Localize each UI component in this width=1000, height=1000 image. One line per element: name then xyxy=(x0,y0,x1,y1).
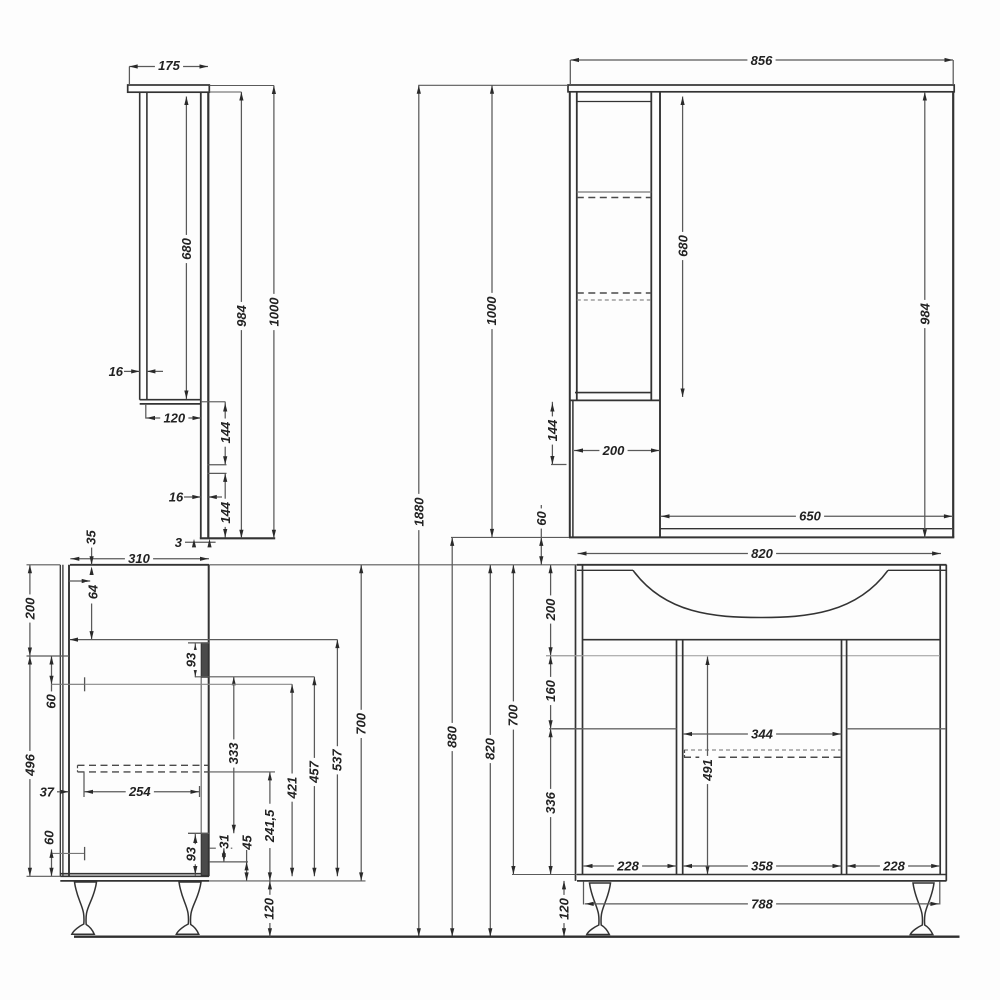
svg-text:241,5: 241,5 xyxy=(262,809,277,843)
svg-text:496: 496 xyxy=(22,753,37,776)
svg-text:820: 820 xyxy=(483,737,498,759)
svg-text:16: 16 xyxy=(109,364,124,379)
svg-text:37: 37 xyxy=(40,784,55,799)
svg-text:228: 228 xyxy=(616,859,639,874)
svg-text:3: 3 xyxy=(175,535,183,550)
svg-text:31: 31 xyxy=(217,834,232,848)
svg-text:650: 650 xyxy=(799,509,821,524)
svg-text:200: 200 xyxy=(543,598,558,621)
svg-text:336: 336 xyxy=(543,791,558,813)
svg-text:60: 60 xyxy=(534,511,549,526)
svg-text:358: 358 xyxy=(751,859,773,874)
svg-text:93: 93 xyxy=(183,652,198,667)
svg-text:175: 175 xyxy=(158,58,180,73)
svg-text:788: 788 xyxy=(751,896,773,911)
svg-text:64: 64 xyxy=(85,584,100,599)
svg-text:680: 680 xyxy=(179,237,194,259)
svg-text:457: 457 xyxy=(307,760,322,783)
svg-text:1000: 1000 xyxy=(267,297,282,327)
svg-text:700: 700 xyxy=(353,712,368,734)
svg-text:60: 60 xyxy=(42,830,57,845)
svg-text:144: 144 xyxy=(218,501,233,523)
svg-text:120: 120 xyxy=(163,410,185,425)
svg-text:344: 344 xyxy=(751,726,773,741)
svg-text:144: 144 xyxy=(545,419,560,441)
svg-text:200: 200 xyxy=(602,443,625,458)
svg-text:700: 700 xyxy=(506,704,521,726)
svg-text:120: 120 xyxy=(557,897,572,919)
svg-text:144: 144 xyxy=(218,421,233,443)
svg-text:35: 35 xyxy=(84,530,99,545)
svg-text:491: 491 xyxy=(700,759,715,782)
svg-text:333: 333 xyxy=(226,742,241,764)
svg-text:984: 984 xyxy=(917,302,932,324)
svg-text:200: 200 xyxy=(22,597,37,620)
svg-text:254: 254 xyxy=(128,784,151,799)
svg-text:680: 680 xyxy=(675,234,690,256)
svg-text:120: 120 xyxy=(261,897,276,919)
svg-text:228: 228 xyxy=(882,859,905,874)
svg-text:984: 984 xyxy=(234,304,249,326)
svg-text:60: 60 xyxy=(43,694,58,709)
svg-text:93: 93 xyxy=(183,846,198,861)
svg-text:537: 537 xyxy=(330,749,345,771)
svg-text:1000: 1000 xyxy=(484,296,499,326)
svg-text:16: 16 xyxy=(169,490,184,505)
svg-text:421: 421 xyxy=(284,777,299,800)
svg-text:160: 160 xyxy=(543,679,558,701)
svg-text:880: 880 xyxy=(445,725,460,747)
svg-text:856: 856 xyxy=(751,53,773,68)
svg-text:45: 45 xyxy=(239,835,254,851)
svg-text:820: 820 xyxy=(751,546,773,561)
svg-text:1880: 1880 xyxy=(411,497,426,527)
